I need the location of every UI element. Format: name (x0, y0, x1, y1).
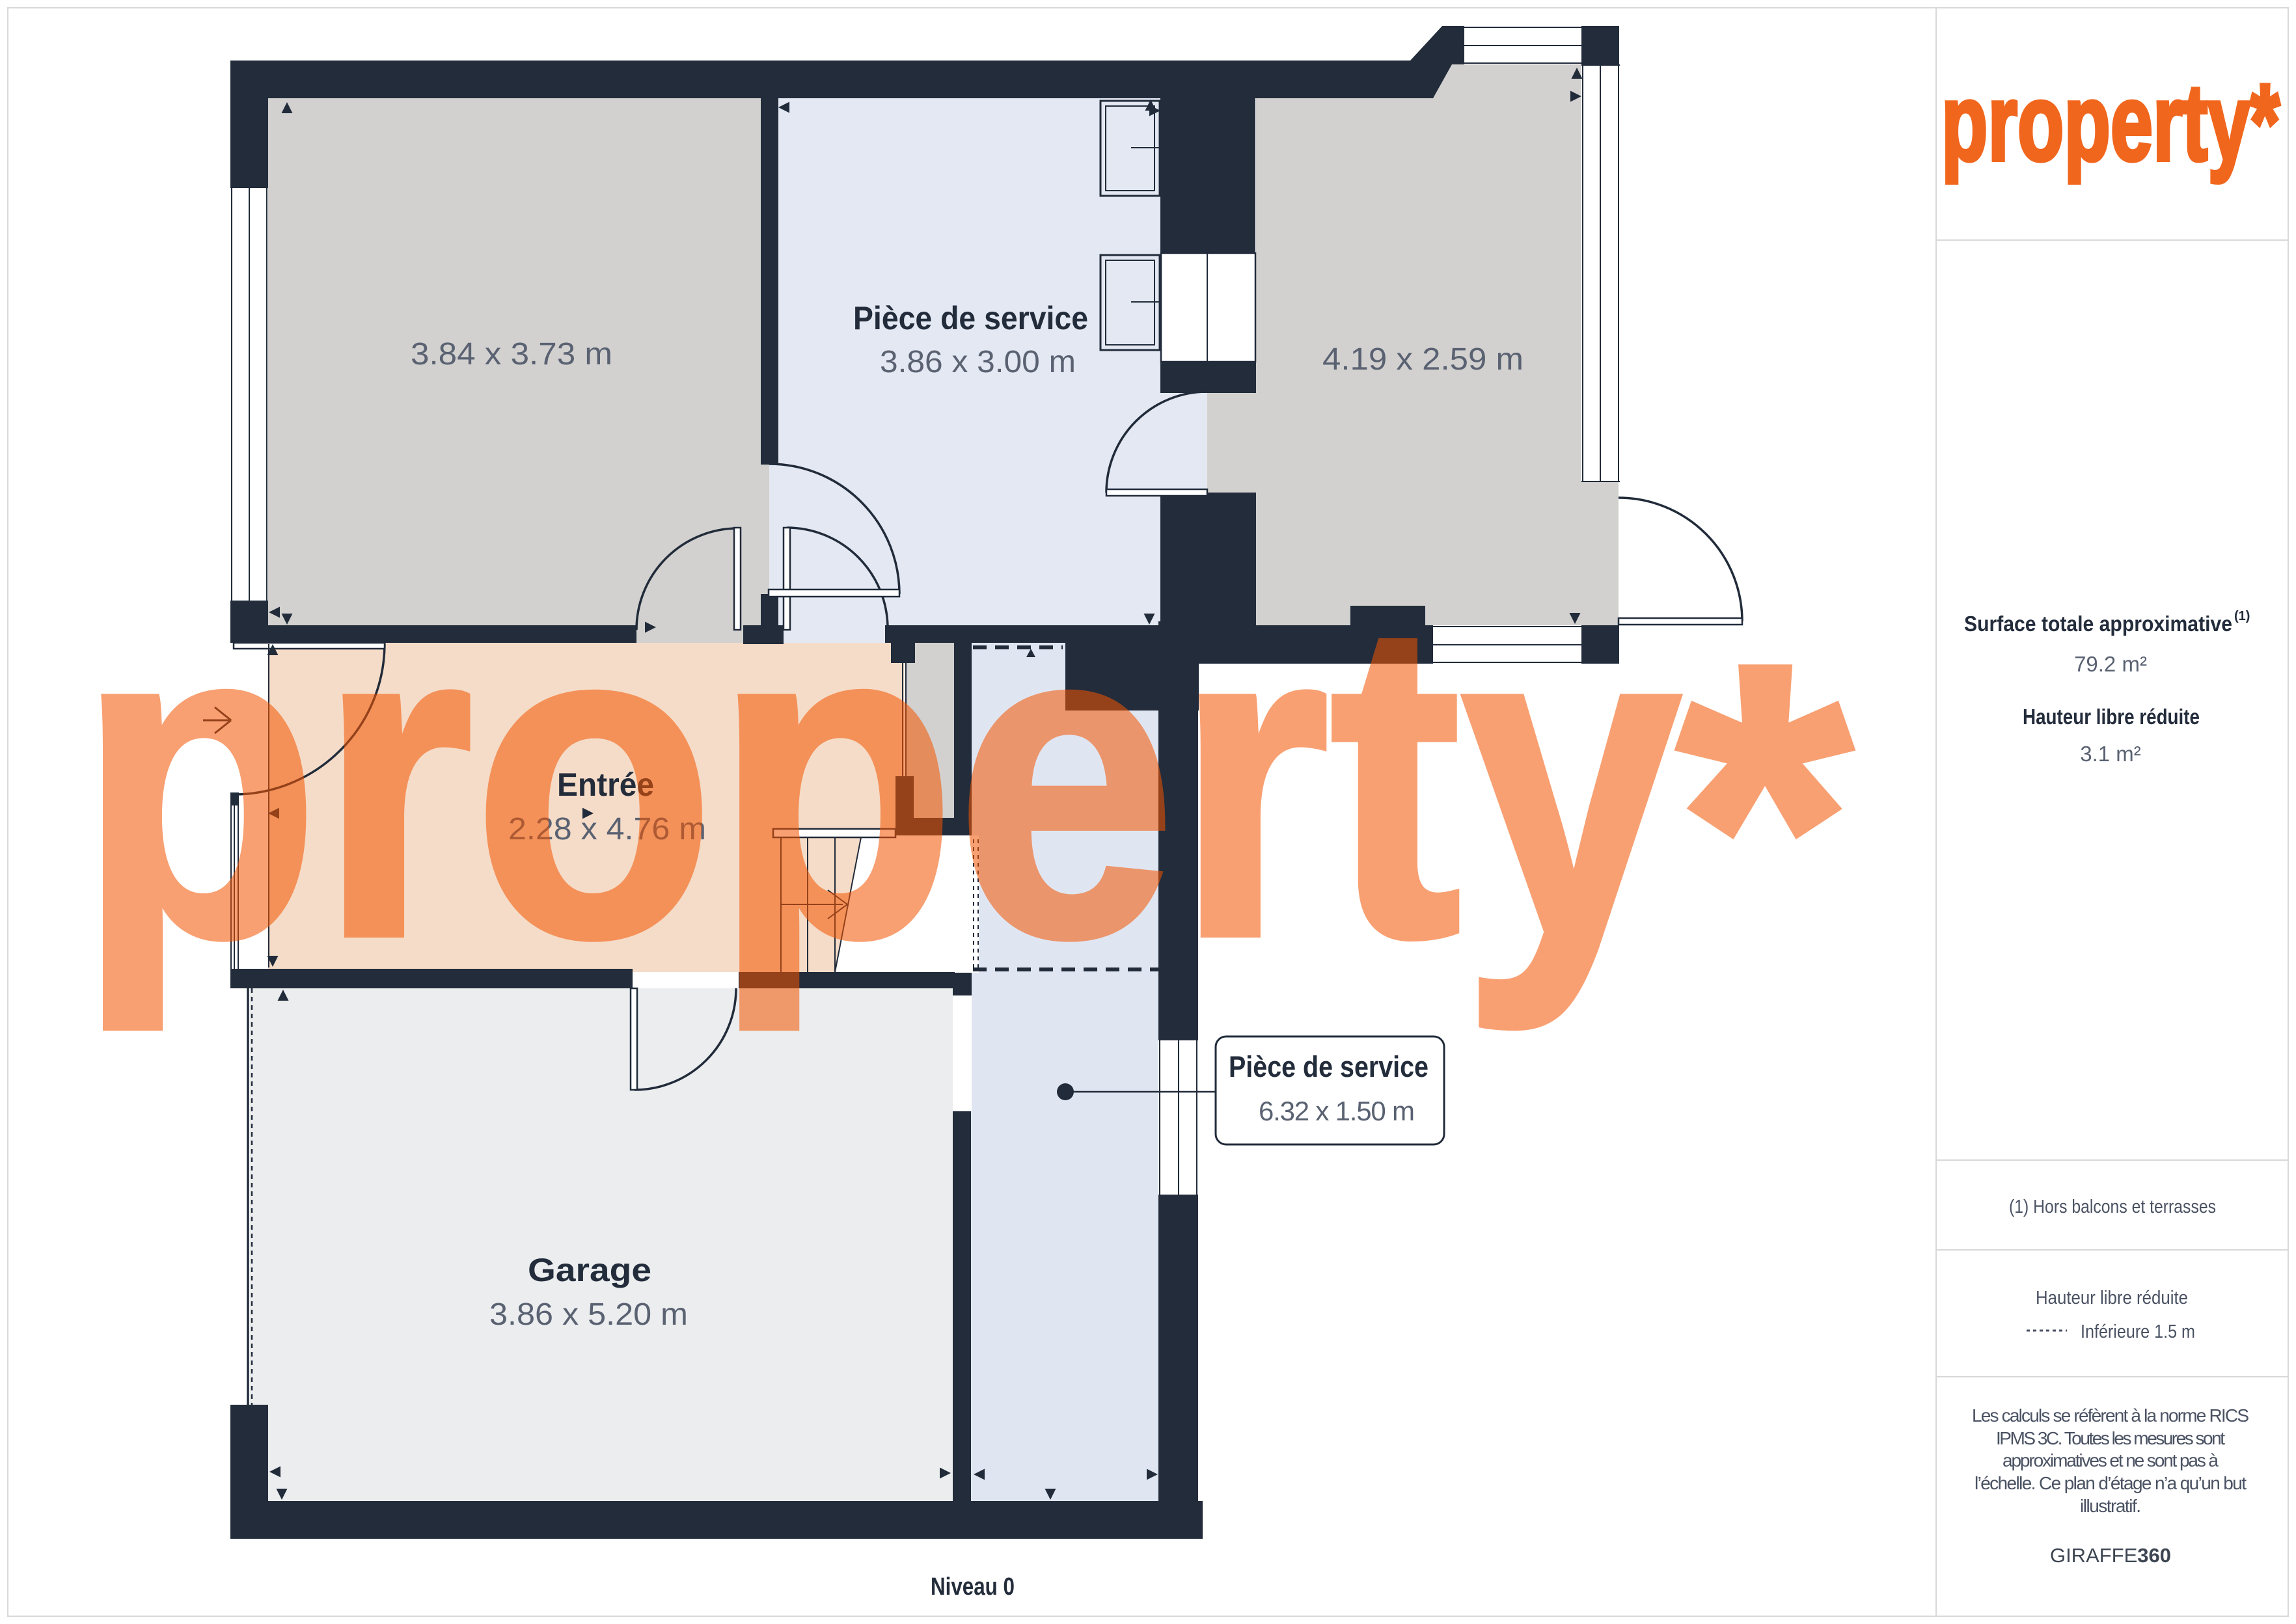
svg-text:*: * (1677, 571, 1853, 1072)
svg-text:property*: property* (1941, 61, 2280, 183)
svg-text:approximatives et ne sont pas: approximatives et ne sont pas à (2002, 1450, 2219, 1470)
svg-text:IPMS 3C. Toutes les mesures so: IPMS 3C. Toutes les mesures sont (1996, 1428, 2225, 1448)
svg-text:Niveau 0: Niveau 0 (931, 1573, 1015, 1601)
svg-text:Pièce de service: Pièce de service (1229, 1050, 1428, 1083)
svg-text:79.2 m²: 79.2 m² (2074, 652, 2147, 676)
svg-text:Garage: Garage (528, 1252, 651, 1288)
svg-text:Surface totale approximative: Surface totale approximative (1964, 612, 2232, 636)
svg-text:4.19 x 2.59 m: 4.19 x 2.59 m (1322, 342, 1524, 377)
svg-text:Les calculs se réfèrent à la n: Les calculs se réfèrent à la norme RICS (1972, 1405, 2249, 1426)
svg-text:3.86 x 3.00 m: 3.86 x 3.00 m (880, 345, 1076, 379)
svg-text:3.86 x 5.20 m: 3.86 x 5.20 m (489, 1297, 688, 1332)
svg-text:3.84 x 3.73 m: 3.84 x 3.73 m (411, 337, 612, 372)
svg-text:6.32 x 1.50 m: 6.32 x 1.50 m (1259, 1096, 1415, 1126)
svg-text:illustratif.: illustratif. (2080, 1496, 2141, 1516)
svg-text:GIRAFFE360: GIRAFFE360 (2050, 1544, 2171, 1567)
svg-text:Inférieure 1.5 m: Inférieure 1.5 m (2081, 1321, 2195, 1342)
svg-text:property: property (78, 528, 1684, 1033)
svg-text:l’échelle. Ce plan d’étage n’a: l’échelle. Ce plan d’étage n’a qu’un but (1975, 1473, 2247, 1493)
svg-text:(1): (1) (2234, 609, 2250, 623)
svg-text:(1) Hors balcons et terrasses: (1) Hors balcons et terrasses (2009, 1197, 2216, 1217)
svg-text:Hauteur libre réduite: Hauteur libre réduite (2023, 705, 2200, 729)
svg-text:3.1 m²: 3.1 m² (2080, 742, 2141, 766)
svg-text:Pièce de service: Pièce de service (853, 300, 1088, 336)
svg-text:Hauteur libre réduite: Hauteur libre réduite (2036, 1288, 2188, 1308)
